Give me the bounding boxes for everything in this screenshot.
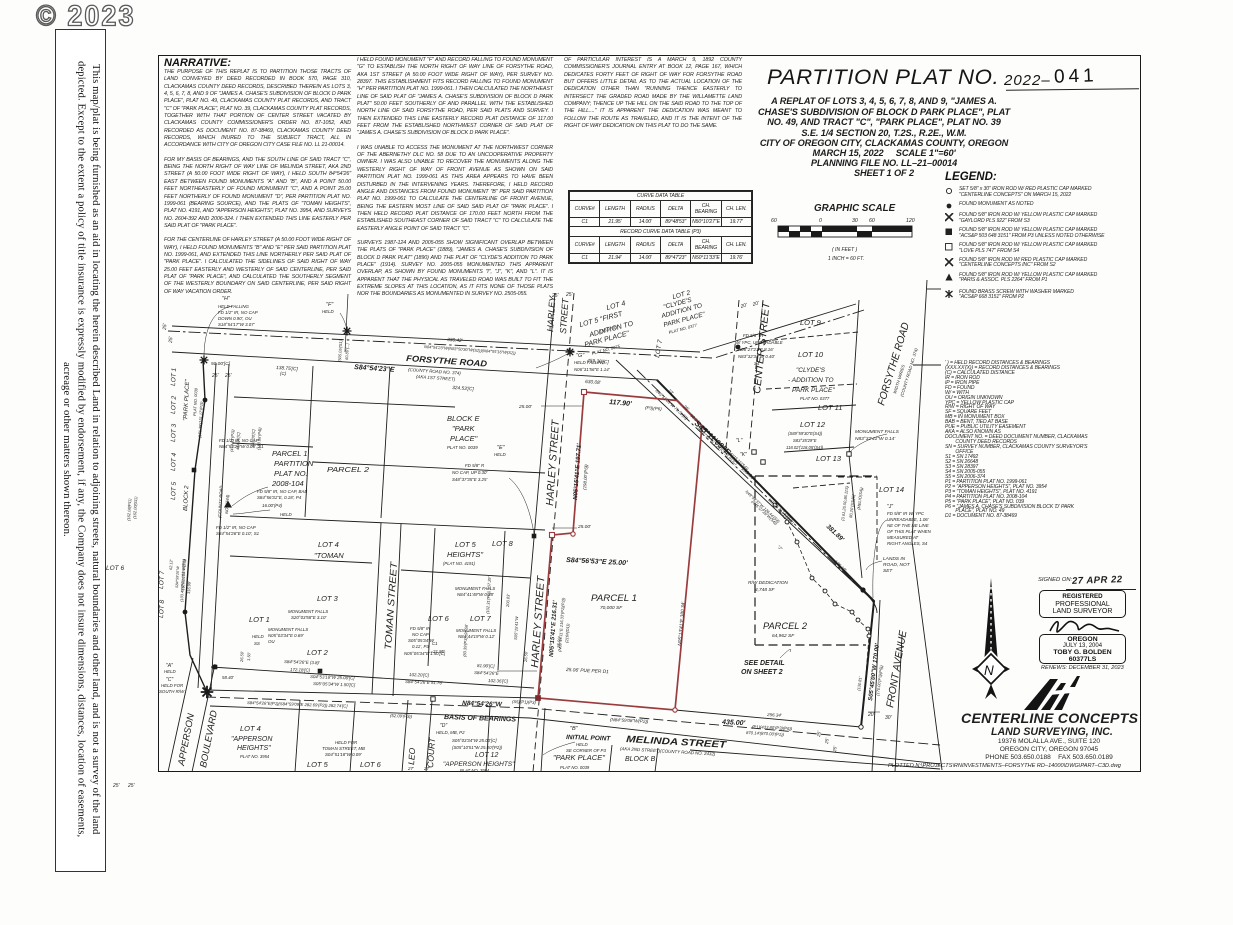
svg-text:2008-104: 2008-104 [271,479,304,488]
svg-text:25': 25' [824,738,830,746]
svg-text:STREET: STREET [558,297,571,335]
svg-text:LOT 8: LOT 8 [492,539,514,548]
svg-text:25': 25' [112,783,121,789]
svg-text:R/W DEDICATION: R/W DEDICATION [748,580,788,586]
svg-text:UNREADABLE, 1.06': UNREADABLE, 1.06' [887,517,929,522]
svg-text:LOT 6: LOT 6 [428,614,450,623]
svg-text:L=21.95': L=21.95' [428,649,445,654]
svg-text:25.00': 25.00' [577,524,592,530]
svg-text:N83°32'41"W 0.14': N83°32'41"W 0.14' [855,436,896,442]
svg-text:27': 27' [423,766,430,771]
svg-text:FD 5/8" IR: FD 5/8" IR [410,626,431,631]
svg-text:HELD: HELD [494,452,507,457]
svg-text:HELD, MB, P2: HELD, MB, P2 [436,730,465,735]
svg-text:LANDS IN: LANDS IN [883,556,906,562]
svg-text:630.08': 630.08' [585,379,602,386]
svg-text:LEO: LEO [406,747,417,765]
svg-text:25': 25' [211,373,220,379]
svg-text:(COUNTY ROAD: (COUNTY ROAD [217,486,224,518]
svg-text:LOT 4: LOT 4 [240,724,261,733]
svg-text:S84°56'53"E 25.00': S84°56'53"E 25.00' [566,556,628,567]
svg-text:(S89°59'30"E(S4)): (S89°59'30"E(S4)) [788,431,823,436]
svg-text:HELD FOR: HELD FOR [161,683,184,688]
svg-text:S04°51'18"W 0.09': S04°51'18"W 0.09' [325,752,362,757]
svg-text:(N84°59'08"W(P2)): (N84°59'08"W(P2)) [610,717,649,724]
svg-text:16.00'(P4): 16.00'(P4) [262,503,283,508]
svg-text:HELD: HELD [322,309,335,314]
svg-text:LOT 4: LOT 4 [318,540,339,549]
svg-text:(52.09'(P3)): (52.09'(P3)) [390,713,413,719]
svg-text:"E": "E" [497,445,506,451]
svg-text:S05°05'34"W: S05°05'34"W [408,638,435,643]
svg-text:LOT 11: LOT 11 [818,403,842,412]
svg-text:25': 25' [551,293,560,299]
svg-text:LOT 7: LOT 7 [470,614,492,623]
svg-text:BASIS OF BEARINGS: BASIS OF BEARINGS [444,714,516,724]
svg-text:N83°32'31"W 0.40': N83°32'31"W 0.40' [738,354,775,359]
svg-text:0.11', P3: 0.11', P3 [412,644,429,649]
svg-text:SOUTH R/W: SOUTH R/W [159,689,185,694]
svg-text:"J": "J" [776,544,783,551]
svg-text:LOT 1: LOT 1 [170,367,178,386]
svg-text:64,962 SF: 64,962 SF [772,633,795,639]
svg-text:"TOMAN: "TOMAN [314,551,344,560]
svg-text:20': 20' [739,302,749,310]
svg-text:HELD FALLING: HELD FALLING [218,304,249,309]
svg-text:LOT 4: LOT 4 [606,300,627,312]
svg-text:23': 23' [667,387,675,395]
svg-text:25': 25' [168,335,174,344]
svg-text:HELD: HELD [280,512,293,517]
svg-text:LOT 5: LOT 5 [307,760,329,769]
svg-text:25': 25' [162,322,168,331]
svg-text:LOT 2: LOT 2 [170,395,178,414]
svg-text:S84°56'31"E, 0.18', P4: S84°56'31"E, 0.18', P4 [257,495,302,500]
svg-text:FD 5/8" IR, NO CAP, BAB: FD 5/8" IR, NO CAP, BAB [257,489,307,494]
svg-text:"APPERSON HEIGHTS": "APPERSON HEIGHTS" [443,761,515,768]
svg-text:TOMAN STREET, MB: TOMAN STREET, MB [322,746,365,751]
svg-text:MEASURED AT: MEASURED AT [887,535,919,540]
svg-text:26.50': 26.50' [239,651,245,663]
svg-text:1.50': 1.50' [246,652,251,661]
svg-text:(83.39'(P3)) 93.58': (83.39'(P3)) 93.58' [462,624,469,657]
svg-text:HELD FOR: HELD FOR [335,740,358,745]
svg-text:S4: S4 [754,361,760,366]
svg-text:N06°27'21"E 8.16': N06°27'21"E 8.16' [738,347,774,352]
svg-text:LOT 10: LOT 10 [798,350,824,359]
svg-text:OF THIS PLAT WHEN: OF THIS PLAT WHEN [887,529,932,534]
svg-text:S84°54'26"E: S84°54'26"E [474,670,499,676]
svg-text:25': 25' [565,292,574,298]
svg-text:70,000 SF: 70,000 SF [600,605,623,611]
svg-text:PARCEL 1: PARCEL 1 [272,449,308,458]
svg-text:182.00'[C]: 182.00'[C] [250,428,256,447]
svg-text:PARCEL 2: PARCEL 2 [327,465,370,474]
svg-text:PARCEL 1: PARCEL 1 [591,593,637,604]
svg-text:25.00': 25.00' [556,636,562,649]
svg-text:(AKA 1ST STREET): (AKA 1ST STREET) [416,374,456,382]
svg-text:"CLYDE'S: "CLYDE'S [796,367,826,374]
svg-text:LOT 9: LOT 9 [800,318,822,327]
svg-text:SET: SET [883,568,893,574]
svg-text:(130.81': (130.81' [856,676,863,691]
svg-text:S18°54'17"W 3.07': S18°54'17"W 3.07' [218,322,255,327]
svg-text:"J": "J" [887,504,893,510]
svg-text:25': 25' [832,746,838,754]
svg-text:LOT 6: LOT 6 [106,565,124,572]
svg-text:SS: SS [254,641,260,646]
svg-text:435.00': 435.00' [721,719,746,727]
svg-text:FD 5/8" R: FD 5/8" R [465,463,485,468]
svg-text:S83°35'29"E: S83°35'29"E [793,438,817,443]
svg-text:HELD FALLING: HELD FALLING [574,360,605,365]
svg-text:NO CAP, UP 0.30': NO CAP, UP 0.30' [452,470,487,475]
svg-text:W/ YPC, UNREADABLE: W/ YPC, UNREADABLE [735,340,783,345]
svg-text:102.36'[C]: 102.36'[C] [488,678,509,684]
svg-text:OU: OU [268,639,275,644]
svg-text:330.42': 330.42' [447,337,464,344]
svg-text:LOT 5: LOT 5 [170,481,178,500]
svg-text:PLAT NO. 3954: PLAT NO. 3954 [240,754,270,759]
svg-text:60.80'(...): 60.80'(...) [344,342,350,360]
svg-text:LOT 2: LOT 2 [307,648,329,657]
svg-text:LOT 5: LOT 5 [455,540,477,549]
svg-text:117.90': 117.90' [609,399,632,408]
svg-text:"APPERSON: "APPERSON [231,736,273,743]
svg-text:HELD: HELD [252,634,265,639]
svg-text:(198.00'(P6)): (198.00'(P6)) [582,464,589,490]
svg-text:(151.38'(151.17'(P1)): (151.38'(151.17'(P1)) [197,401,204,438]
svg-text:S04°53'18"W 25.00'[C]: S04°53'18"W 25.00'[C] [310,674,355,681]
svg-text:58.40': 58.40' [222,675,234,680]
svg-text:256.34': 256.34' [766,712,782,718]
svg-text:"PARK PLACE": "PARK PLACE" [553,753,605,762]
svg-text:FD 5/8" IR W/ YPC: FD 5/8" IR W/ YPC [887,511,925,516]
svg-text:50.00'[C]: 50.00'[C] [211,361,231,367]
svg-text:"PARK PLACE": "PARK PLACE" [183,378,191,421]
svg-text:N05°03'34"E 0.69': N05°03'34"E 0.69' [268,633,304,638]
svg-text:324.53'[C]: 324.53'[C] [452,385,475,393]
svg-text:S48°37'35"E 3.25': S48°37'35"E 3.25' [452,477,487,482]
svg-text:20': 20' [867,712,876,718]
svg-text:4,748 SF: 4,748 SF [755,587,776,593]
svg-text:LOT 14: LOT 14 [879,485,904,494]
svg-text:LOT 12: LOT 12 [800,420,826,429]
svg-text:LOT 6: LOT 6 [360,760,382,769]
svg-text:(P3)(P6): (P3)(P6) [645,405,662,411]
svg-text:PLAT NO. 0039: PLAT NO. 0039 [447,445,478,450]
svg-text:"D": "D" [440,723,447,729]
svg-text:LOT 7: LOT 7 [158,570,166,589]
svg-text:N84°54'26"W: N84°54'26"W [462,699,503,708]
svg-text:25.00': 25.00' [518,404,533,410]
svg-text:N05°15'41"E 197.71': N05°15'41"E 197.71' [573,443,583,500]
svg-text:MONUMENT FALLS: MONUMENT FALLS [288,609,328,614]
svg-text:PLAT NO. 0377: PLAT NO. 0377 [800,396,830,401]
svg-text:414.05'[C]: 414.05'[C] [235,431,241,450]
svg-text:S05°15'41"W: S05°15'41"W [513,615,519,640]
svg-text:25': 25' [816,731,822,739]
svg-text:LOT 3: LOT 3 [170,423,178,442]
svg-text:(C): (C) [280,371,287,376]
svg-text:N: N [984,663,994,678]
svg-text:25': 25' [127,783,136,789]
svg-text:COURT: COURT [425,737,437,768]
svg-text:200.83': 200.83' [505,594,511,608]
svg-text:S05°05'34"W 1.50'[C]: S05°05'34"W 1.50'[C] [313,681,356,687]
svg-text:N06°31'56"E 1.14': N06°31'56"E 1.14' [574,367,610,372]
svg-text:81.90'[C]: 81.90'[C] [477,663,495,669]
svg-text:(S05°10'51"W 25.00'(P2)): (S05°10'51"W 25.00'(P2)) [452,745,503,750]
svg-text:PLAT NO. 0039: PLAT NO. 0039 [560,765,590,770]
svg-text:(162.00(S1)): (162.00(S1)) [132,496,138,519]
svg-text:102.20'[C]: 102.20'[C] [409,672,430,678]
svg-text:"K": "K" [740,452,747,458]
svg-text:DOWN 0.90', OU: DOWN 0.90', OU [218,316,252,321]
svg-text:NE OF THE NE LINE: NE OF THE NE LINE [887,523,929,528]
svg-text:"F": "F" [326,302,334,308]
svg-text:30': 30' [885,715,893,721]
svg-text:"L": "L" [736,438,743,444]
svg-text:SE CORNER OF P3: SE CORNER OF P3 [566,748,606,753]
svg-text:BLOCK E: BLOCK E [447,414,481,423]
svg-text:BLOCK 2: BLOCK 2 [183,485,190,511]
svg-text:"H": "H" [222,296,231,302]
svg-text:BLOCK B: BLOCK B [625,756,656,763]
svg-text:S20°03'58"E 3.10': S20°03'58"E 3.10' [291,615,326,620]
svg-text:MONUMENT FALLS: MONUMENT FALLS [456,628,496,633]
svg-text:PLAT NO.: PLAT NO. [274,469,308,478]
svg-text:"B": "B" [570,726,579,732]
svg-text:N05°13'41"E 380.34': N05°13'41"E 380.34' [677,601,687,647]
svg-text:S84°54'26"E 0.10', S1: S84°54'26"E 0.10', S1 [216,531,260,536]
svg-text:- ADDITION TO: - ADDITION TO [788,377,834,384]
svg-text:26.50': 26.50' [523,651,529,663]
svg-text:PLACE": PLACE" [450,434,478,443]
svg-text:118.02'(118.05'(S4)): 118.02'(118.05'(S4)) [786,445,824,450]
svg-text:LOT 4: LOT 4 [170,452,178,471]
svg-text:(PLAT NO. 4191): (PLAT NO. 4191) [443,561,476,566]
svg-text:C1: C1 [432,641,438,646]
svg-text:PARK PLACE": PARK PLACE" [792,387,835,394]
svg-text:HEIGHTS": HEIGHTS" [447,550,483,559]
svg-text:(505.05'(S1)): (505.05'(S1)) [337,338,343,362]
svg-text:S05°03'34"W 25.00'[C]: S05°03'34"W 25.00'[C] [452,738,497,743]
svg-text:(MELIO(S4)): (MELIO(S4)) [856,486,864,510]
svg-text:LOT 13: LOT 13 [816,454,842,463]
svg-text:HELD: HELD [576,742,589,747]
svg-text:ON SHEET 2: ON SHEET 2 [741,669,783,676]
svg-text:FD 1/2" IR, NO CAP: FD 1/2" IR, NO CAP [218,310,258,315]
svg-text:"PARK: "PARK [452,424,476,433]
svg-text:870.14'(870.00'(P1)): 870.14'(870.00'(P1)) [746,730,785,737]
svg-text:172.18'[C]: 172.18'[C] [290,667,311,673]
svg-text:25.06' PUE PER D1: 25.06' PUE PER D1 [565,667,609,675]
svg-text:316.99': 316.99' [186,581,192,594]
svg-text:381.89': 381.89' [825,523,846,543]
svg-text:S84°54'26"E (3.8)': S84°54'26"E (3.8)' [284,659,320,665]
svg-text:FD 5/8" IR: FD 5/8" IR [743,333,764,338]
svg-text:PLAT NO. 3954: PLAT NO. 3954 [460,768,490,773]
svg-text:MONUMENT FALLS: MONUMENT FALLS [268,627,308,632]
svg-text:HEIGHTS": HEIGHTS" [237,745,271,752]
svg-text:S8°27'21"W 1.26'[C] 31.01'[C]: S8°27'21"W 1.26'[C] 31.01'[C] [696,426,739,466]
svg-text:25': 25' [224,373,233,379]
svg-text:NO CAP: NO CAP [412,632,429,637]
svg-text:(102.31'(P3)) 107.28': (102.31'(P3)) 107.28' [485,576,492,614]
svg-text:HELD: HELD [164,669,177,674]
svg-text:(S5)(P1)(P3): (S5)(P1)(P3) [512,699,536,705]
svg-text:LOT 8: LOT 8 [158,599,166,618]
svg-text:LOT 3: LOT 3 [317,594,339,603]
svg-text:LOT 1: LOT 1 [249,615,270,624]
svg-text:INITIAL POINT: INITIAL POINT [566,734,612,743]
svg-text:MONUMENT FALLS: MONUMENT FALLS [855,429,900,435]
svg-text:62.12': 62.12' [168,559,174,570]
svg-text:HARLEY: HARLEY [545,295,558,333]
svg-text:S84°54'26"E 51.76': S84°54'26"E 51.76' [405,679,443,685]
svg-text:SEE DETAIL: SEE DETAIL [744,660,785,667]
svg-text:PARTITION: PARTITION [274,459,314,468]
svg-text:BOULEVARD: BOULEVARD [198,709,220,768]
svg-text:"G": "G" [576,353,585,359]
svg-text:LOT 12: LOT 12 [475,752,498,759]
svg-text:RIGHT ANGLES, S4: RIGHT ANGLES, S4 [887,541,928,546]
svg-text:FD 1/2" IR, NO CAP: FD 1/2" IR, NO CAP [216,525,256,530]
svg-text:NO. 1744): NO. 1744) [224,494,230,514]
svg-text:(216#(D1)): (216#(D1)) [564,623,570,643]
svg-text:27': 27' [407,766,414,771]
svg-text:ROAD, NOT: ROAD, NOT [883,562,911,568]
svg-text:FRONT AVENUE: FRONT AVENUE [884,629,910,709]
svg-text:PARCEL 2: PARCEL 2 [763,621,808,632]
